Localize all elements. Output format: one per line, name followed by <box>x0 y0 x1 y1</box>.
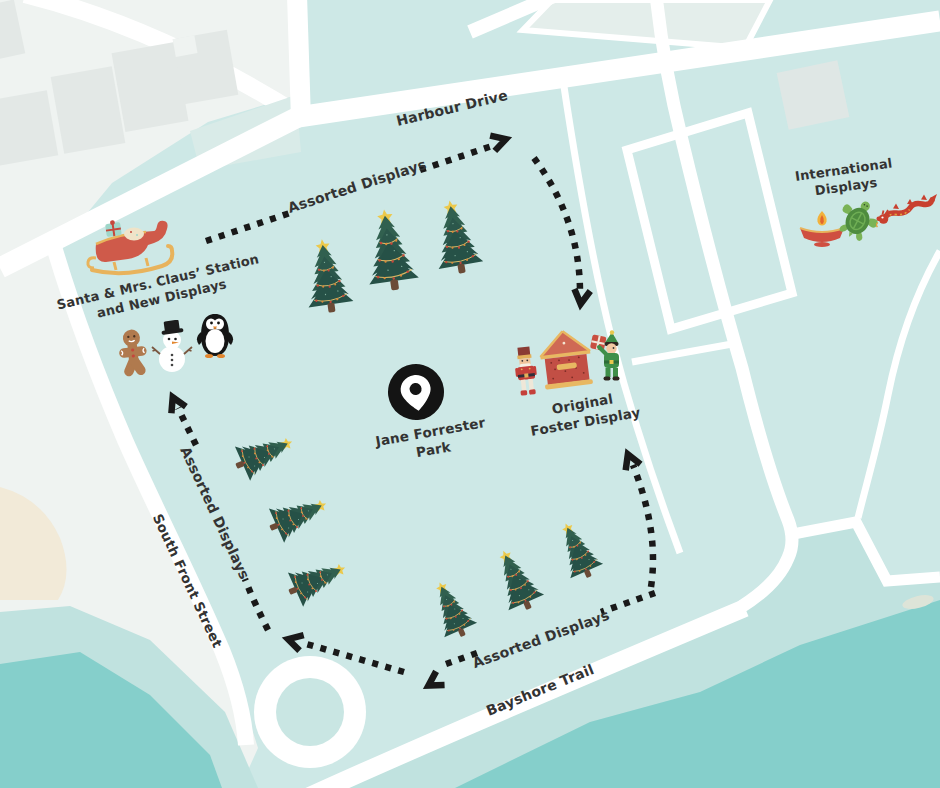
route-dotted-arrow-northeast-down <box>534 158 590 305</box>
route-dotted-arrow-southwest <box>286 631 404 672</box>
route-arrows-layer <box>0 0 940 788</box>
park-map: Harbour Drive Assorted Displays Internat… <box>0 0 940 788</box>
route-dotted-arrow-southeast-up <box>620 451 653 587</box>
